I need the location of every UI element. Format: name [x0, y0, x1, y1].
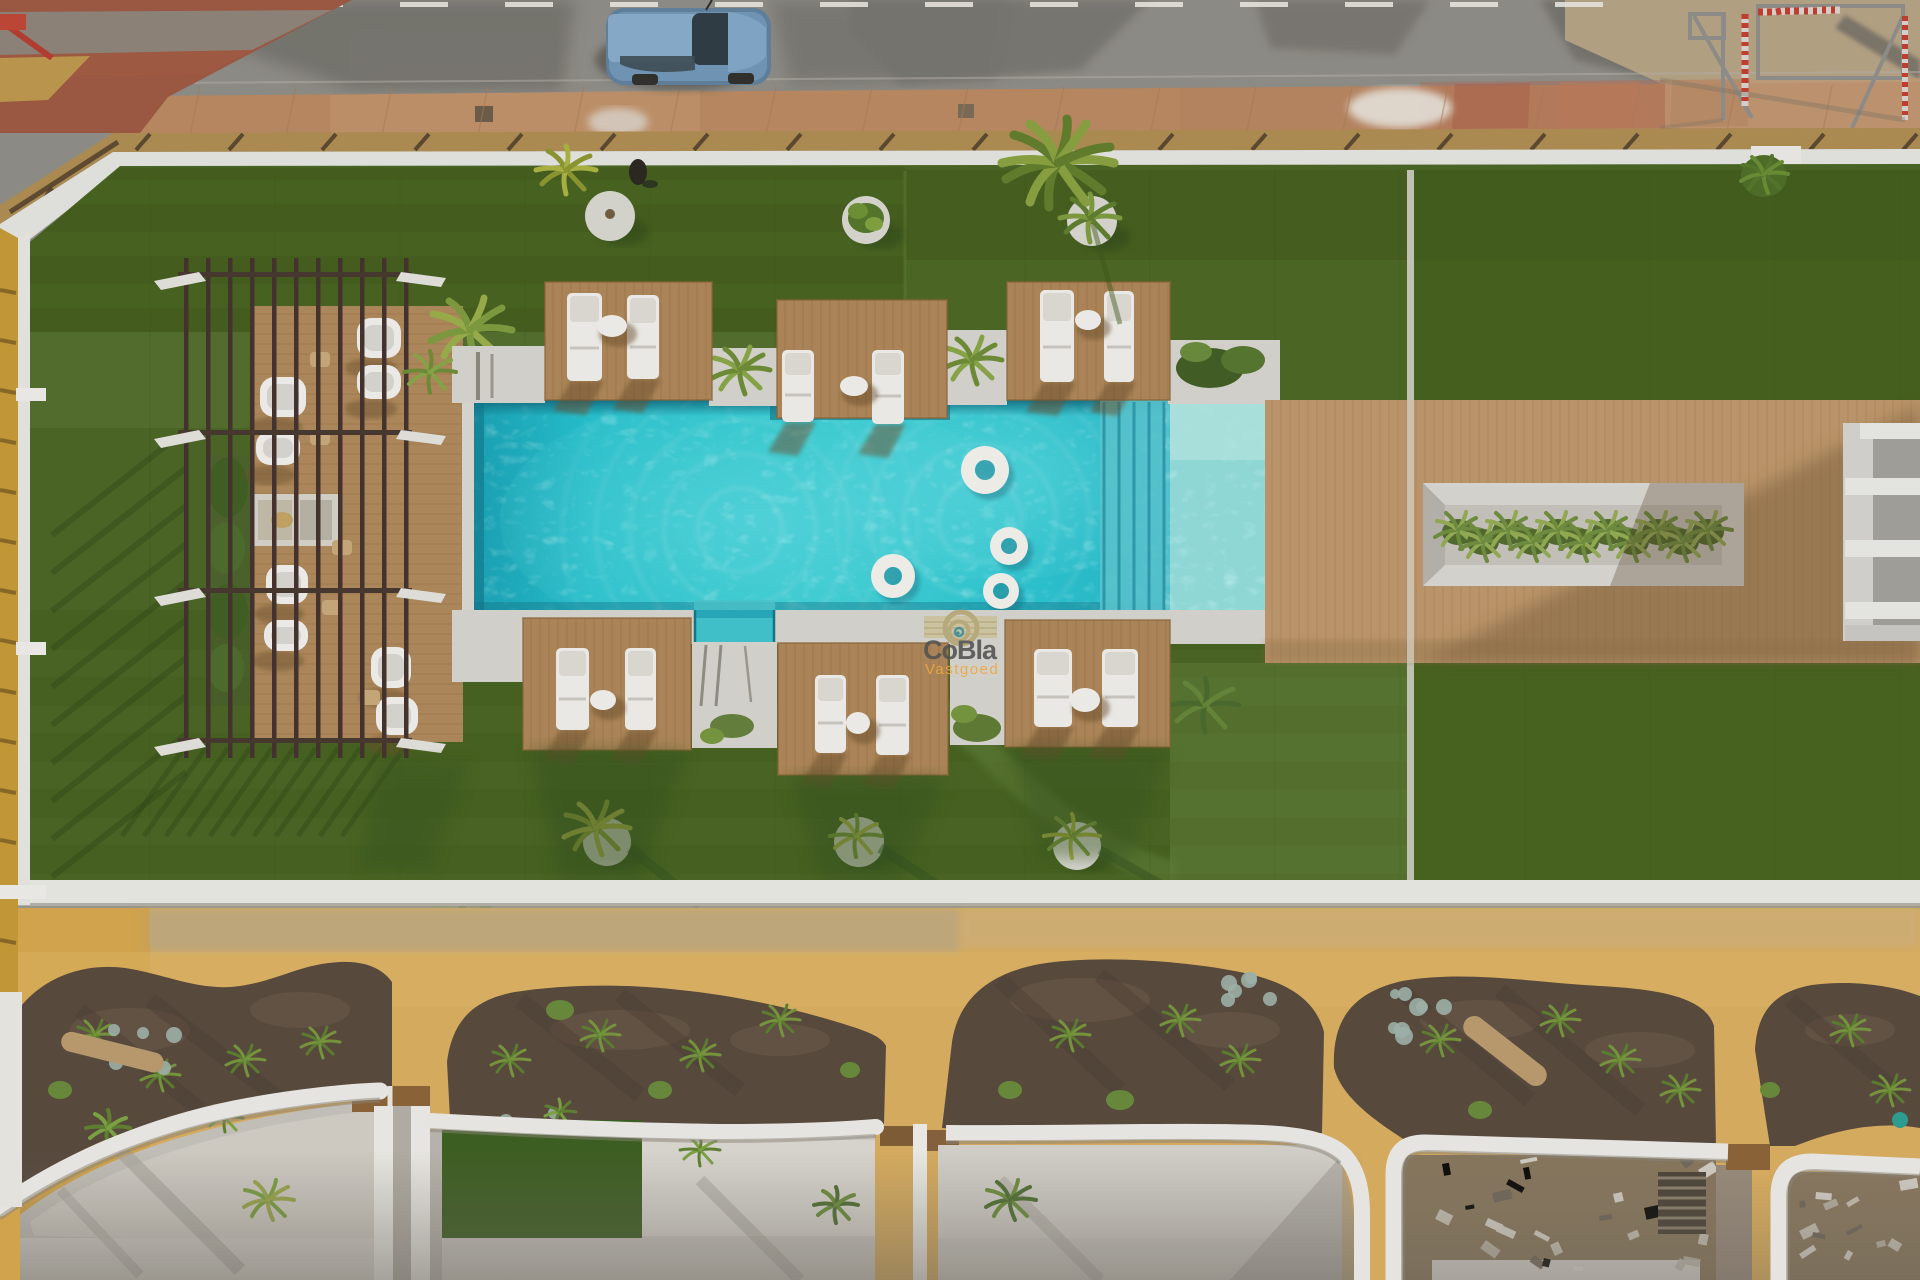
- svg-text:Vastgoed: Vastgoed: [925, 661, 999, 678]
